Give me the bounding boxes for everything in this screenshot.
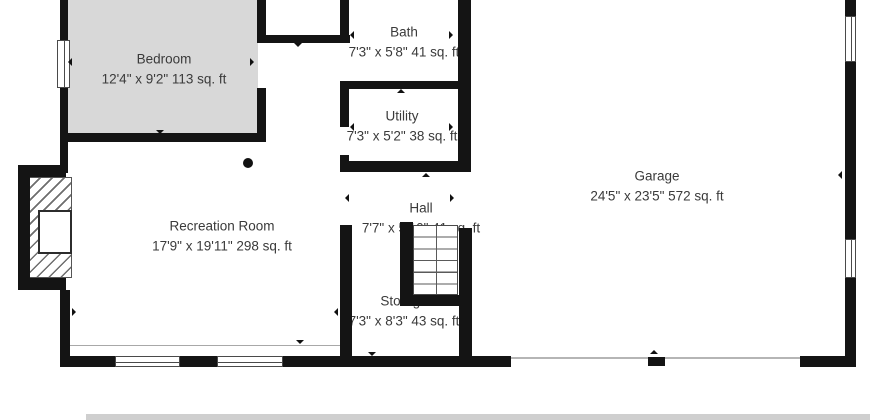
window-mullion bbox=[851, 240, 852, 277]
window bbox=[115, 356, 180, 367]
wall-segment bbox=[340, 0, 349, 43]
fireplace-firebox bbox=[38, 210, 72, 254]
room-name: Garage bbox=[634, 166, 679, 186]
window-mullion bbox=[218, 362, 282, 363]
room-label-utility: Utility 7'3" x 5'2" 38 sq. ft bbox=[347, 106, 458, 145]
room-dims: 7'3" x 5'8" 41 sq. ft bbox=[349, 42, 460, 62]
measure-arrow bbox=[449, 123, 453, 131]
room-label-bath: Bath 7'3" x 5'8" 41 sq. ft bbox=[349, 22, 460, 61]
wall-segment bbox=[340, 161, 470, 172]
room-dims: 7'3" x 8'3" 43 sq. ft bbox=[349, 311, 460, 331]
support-post-dot bbox=[243, 158, 253, 168]
measure-arrow bbox=[250, 58, 254, 66]
wall-segment bbox=[257, 35, 350, 43]
window-mullion bbox=[851, 17, 852, 61]
wall-segment bbox=[340, 81, 467, 89]
measure-arrow bbox=[350, 31, 354, 39]
window bbox=[217, 356, 283, 367]
measure-arrow bbox=[422, 173, 430, 177]
wall-segment bbox=[459, 356, 511, 367]
measure-arrow bbox=[450, 194, 454, 202]
wall-segment bbox=[257, 88, 266, 142]
window bbox=[845, 16, 856, 62]
measure-arrow bbox=[350, 123, 354, 131]
interior-line bbox=[62, 345, 345, 346]
wall-segment bbox=[18, 278, 66, 290]
window bbox=[845, 239, 856, 278]
measure-arrow bbox=[449, 31, 453, 39]
staircase bbox=[413, 225, 458, 295]
room-dims: 17'9" x 19'11" 298 sq. ft bbox=[152, 236, 292, 256]
image-edge-strip bbox=[86, 414, 870, 420]
measure-arrow bbox=[72, 308, 76, 316]
room-name: Utility bbox=[386, 106, 419, 126]
measure-arrow bbox=[838, 171, 842, 179]
measure-arrow bbox=[397, 89, 405, 93]
measure-arrow bbox=[156, 130, 164, 134]
wall-segment bbox=[845, 278, 856, 367]
measure-arrow bbox=[294, 43, 302, 47]
wall-segment bbox=[845, 0, 856, 16]
room-name: Hall bbox=[409, 198, 432, 218]
wall-segment bbox=[340, 356, 475, 367]
room-label-recreation: Recreation Room 17'9" x 19'11" 298 sq. f… bbox=[152, 216, 292, 255]
measure-arrow bbox=[650, 350, 658, 354]
wall-segment bbox=[400, 222, 413, 306]
measure-arrow bbox=[68, 58, 72, 66]
wall-segment bbox=[60, 356, 115, 367]
room-name: Recreation Room bbox=[169, 216, 274, 236]
measure-arrow bbox=[345, 194, 349, 202]
room-name: Bedroom bbox=[137, 49, 192, 69]
wall-segment bbox=[340, 89, 349, 127]
measure-arrow bbox=[368, 352, 376, 356]
wall-segment bbox=[60, 133, 266, 142]
window-mullion bbox=[116, 362, 179, 363]
wall-segment bbox=[845, 62, 856, 239]
room-dims: 12'4" x 9'2" 113 sq. ft bbox=[102, 69, 227, 89]
wall-segment bbox=[60, 0, 68, 40]
room-label-garage: Garage 24'5" x 23'5" 572 sq. ft bbox=[590, 166, 723, 205]
room-name: Bath bbox=[390, 22, 418, 42]
room-label-bedroom: Bedroom 12'4" x 9'2" 113 sq. ft bbox=[102, 49, 227, 88]
wall-segment bbox=[458, 0, 471, 172]
staircase-rail bbox=[436, 226, 437, 294]
measure-arrow bbox=[334, 308, 338, 316]
room-dims: 24'5" x 23'5" 572 sq. ft bbox=[590, 186, 723, 206]
wall-segment bbox=[180, 356, 217, 367]
wall-segment bbox=[60, 88, 68, 173]
garage-door-center-post bbox=[648, 357, 665, 366]
window-mullion bbox=[64, 41, 65, 87]
wall-segment bbox=[459, 228, 472, 367]
wall-segment bbox=[340, 225, 352, 358]
room-dims: 7'3" x 5'2" 38 sq. ft bbox=[347, 126, 458, 146]
floor-plan: Bedroom 12'4" x 9'2" 113 sq. ft Bath 7'3… bbox=[0, 0, 870, 420]
measure-arrow bbox=[296, 340, 304, 344]
wall-segment bbox=[18, 165, 30, 290]
